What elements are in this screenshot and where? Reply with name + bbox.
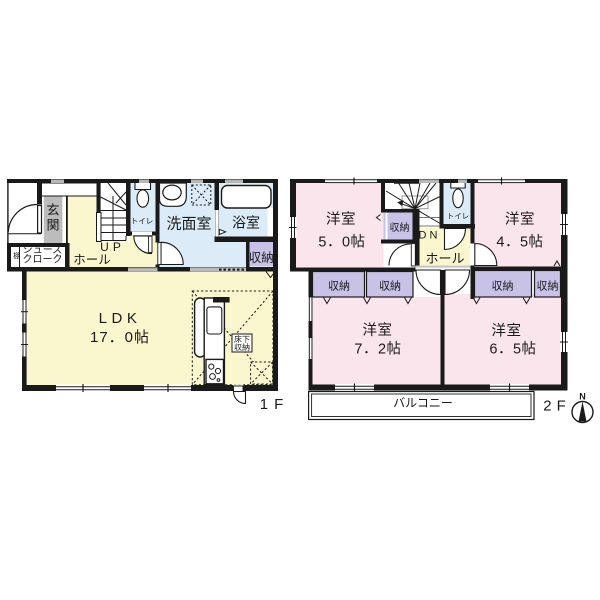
svg-text:4．5帖: 4．5帖 bbox=[496, 234, 543, 251]
svg-text:収納: 収納 bbox=[234, 342, 250, 352]
svg-text:2F: 2F bbox=[543, 398, 571, 415]
svg-text:ホール: ホール bbox=[73, 253, 111, 267]
svg-text:洋室: 洋室 bbox=[505, 211, 535, 228]
svg-text:5．0帖: 5．0帖 bbox=[318, 234, 365, 251]
svg-text:浴室: 浴室 bbox=[232, 215, 260, 231]
svg-text:1F: 1F bbox=[260, 396, 290, 413]
svg-text:クローク: クローク bbox=[23, 254, 63, 266]
svg-text:トイレ: トイレ bbox=[447, 212, 470, 221]
svg-text:関: 関 bbox=[46, 218, 59, 233]
svg-text:玄: 玄 bbox=[46, 203, 59, 218]
svg-text:洋室: 洋室 bbox=[363, 322, 393, 339]
svg-text:N: N bbox=[579, 392, 586, 402]
svg-text:ホール: ホール bbox=[425, 251, 464, 266]
svg-text:収納: 収納 bbox=[328, 280, 350, 293]
svg-text:洋室: 洋室 bbox=[326, 211, 356, 228]
svg-text:バルコニー: バルコニー bbox=[393, 396, 453, 410]
svg-text:7．2帖: 7．2帖 bbox=[354, 341, 401, 358]
svg-text:トイレ: トイレ bbox=[131, 217, 154, 226]
svg-text:収納: 収納 bbox=[249, 251, 274, 265]
svg-text:収納: 収納 bbox=[379, 280, 401, 293]
svg-text:収納: 収納 bbox=[492, 280, 514, 293]
svg-text:棚: 棚 bbox=[13, 251, 20, 260]
svg-text:収納: 収納 bbox=[390, 221, 410, 234]
svg-text:洋室: 洋室 bbox=[492, 323, 522, 340]
svg-text:17．0帖: 17．0帖 bbox=[90, 329, 150, 346]
svg-text:6．5帖: 6．5帖 bbox=[489, 341, 536, 358]
svg-text:収納: 収納 bbox=[537, 280, 559, 293]
svg-text:洗面室: 洗面室 bbox=[166, 216, 211, 233]
svg-text:LDK: LDK bbox=[99, 310, 142, 327]
svg-text:UP: UP bbox=[100, 240, 125, 254]
svg-text:DN: DN bbox=[419, 230, 441, 242]
